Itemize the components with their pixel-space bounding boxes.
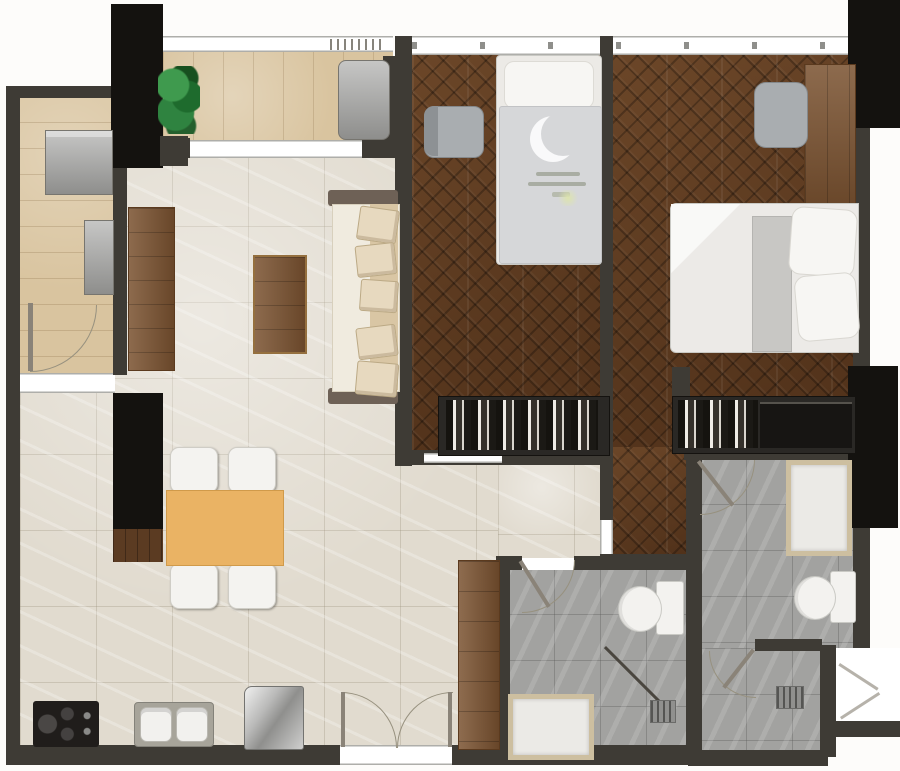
wall-ensuite-partition xyxy=(755,639,822,651)
wall-side-balcony-top xyxy=(6,86,115,98)
master-desk-chair xyxy=(754,82,808,148)
entrance-threshold xyxy=(340,745,452,765)
wall-nook-left-upper xyxy=(600,458,613,520)
dining-chair xyxy=(170,563,218,609)
coffee-table xyxy=(253,255,307,354)
master-pillow xyxy=(793,271,861,342)
dining-chair xyxy=(228,563,276,609)
condenser-unit xyxy=(84,220,114,295)
room-master-entry-nook xyxy=(611,447,688,562)
chair-back xyxy=(424,106,438,156)
bed-fold xyxy=(671,204,741,274)
sofa-pillow xyxy=(355,360,400,398)
shower-mat xyxy=(786,460,852,556)
column-dining xyxy=(113,393,163,529)
master-pillow xyxy=(788,206,859,278)
wall-ensuite-right-lower xyxy=(820,645,836,757)
side-balcony-window xyxy=(18,373,115,393)
bed1-pillow xyxy=(504,61,594,109)
balcony-door-leaf xyxy=(28,303,33,371)
room-hallway xyxy=(498,458,613,562)
tv-console xyxy=(128,207,175,371)
dining-table xyxy=(166,490,284,566)
sofa-pillow xyxy=(355,324,399,361)
toilet xyxy=(618,586,662,632)
bed-runner xyxy=(752,216,792,352)
dining-chair xyxy=(170,447,218,493)
hanging-clothes xyxy=(678,400,758,448)
duvet-accent xyxy=(556,190,580,206)
wall-balcony-divider xyxy=(113,166,127,375)
wall-balcony-stub-left xyxy=(163,138,190,158)
plant xyxy=(158,66,200,134)
wall-bathroom-top-b xyxy=(574,556,692,570)
entry-door-leaf xyxy=(341,692,345,747)
floor-drain xyxy=(776,686,804,709)
column-top-left xyxy=(111,4,163,168)
dining-chair xyxy=(228,447,276,493)
sofa-pillow xyxy=(354,242,397,278)
sofa-pillow xyxy=(356,205,400,244)
refrigerator xyxy=(244,686,304,750)
sink-basin xyxy=(140,707,172,742)
balcony-unit xyxy=(338,60,390,140)
cooktop xyxy=(33,701,99,747)
railing-grille xyxy=(330,39,385,50)
wall-notch-bottom xyxy=(828,721,900,737)
dining-column-cabinet xyxy=(113,529,163,562)
duvet-print-line xyxy=(536,172,580,176)
sink-basin xyxy=(176,707,208,742)
entry-door-leaf xyxy=(448,692,452,747)
wall-left xyxy=(6,86,20,765)
kitchen-sink xyxy=(134,702,214,747)
master-tv-unit xyxy=(760,402,852,448)
tall-cabinet xyxy=(458,560,500,750)
floor-plan xyxy=(0,0,900,771)
washing-machine xyxy=(45,130,113,195)
toilet xyxy=(794,576,836,620)
master-desk xyxy=(804,64,856,210)
master-door-opening xyxy=(600,520,613,556)
hanging-clothes xyxy=(446,400,598,450)
floor-drain xyxy=(650,700,676,723)
wall-bottom-right xyxy=(688,750,828,766)
sofa-pillow xyxy=(359,279,399,314)
duvet-moon-graphic xyxy=(541,112,585,156)
balcony-sliding-door xyxy=(190,140,362,158)
window-mullions xyxy=(412,42,853,49)
shower-tray xyxy=(508,694,594,760)
duvet-print-line xyxy=(528,182,586,186)
